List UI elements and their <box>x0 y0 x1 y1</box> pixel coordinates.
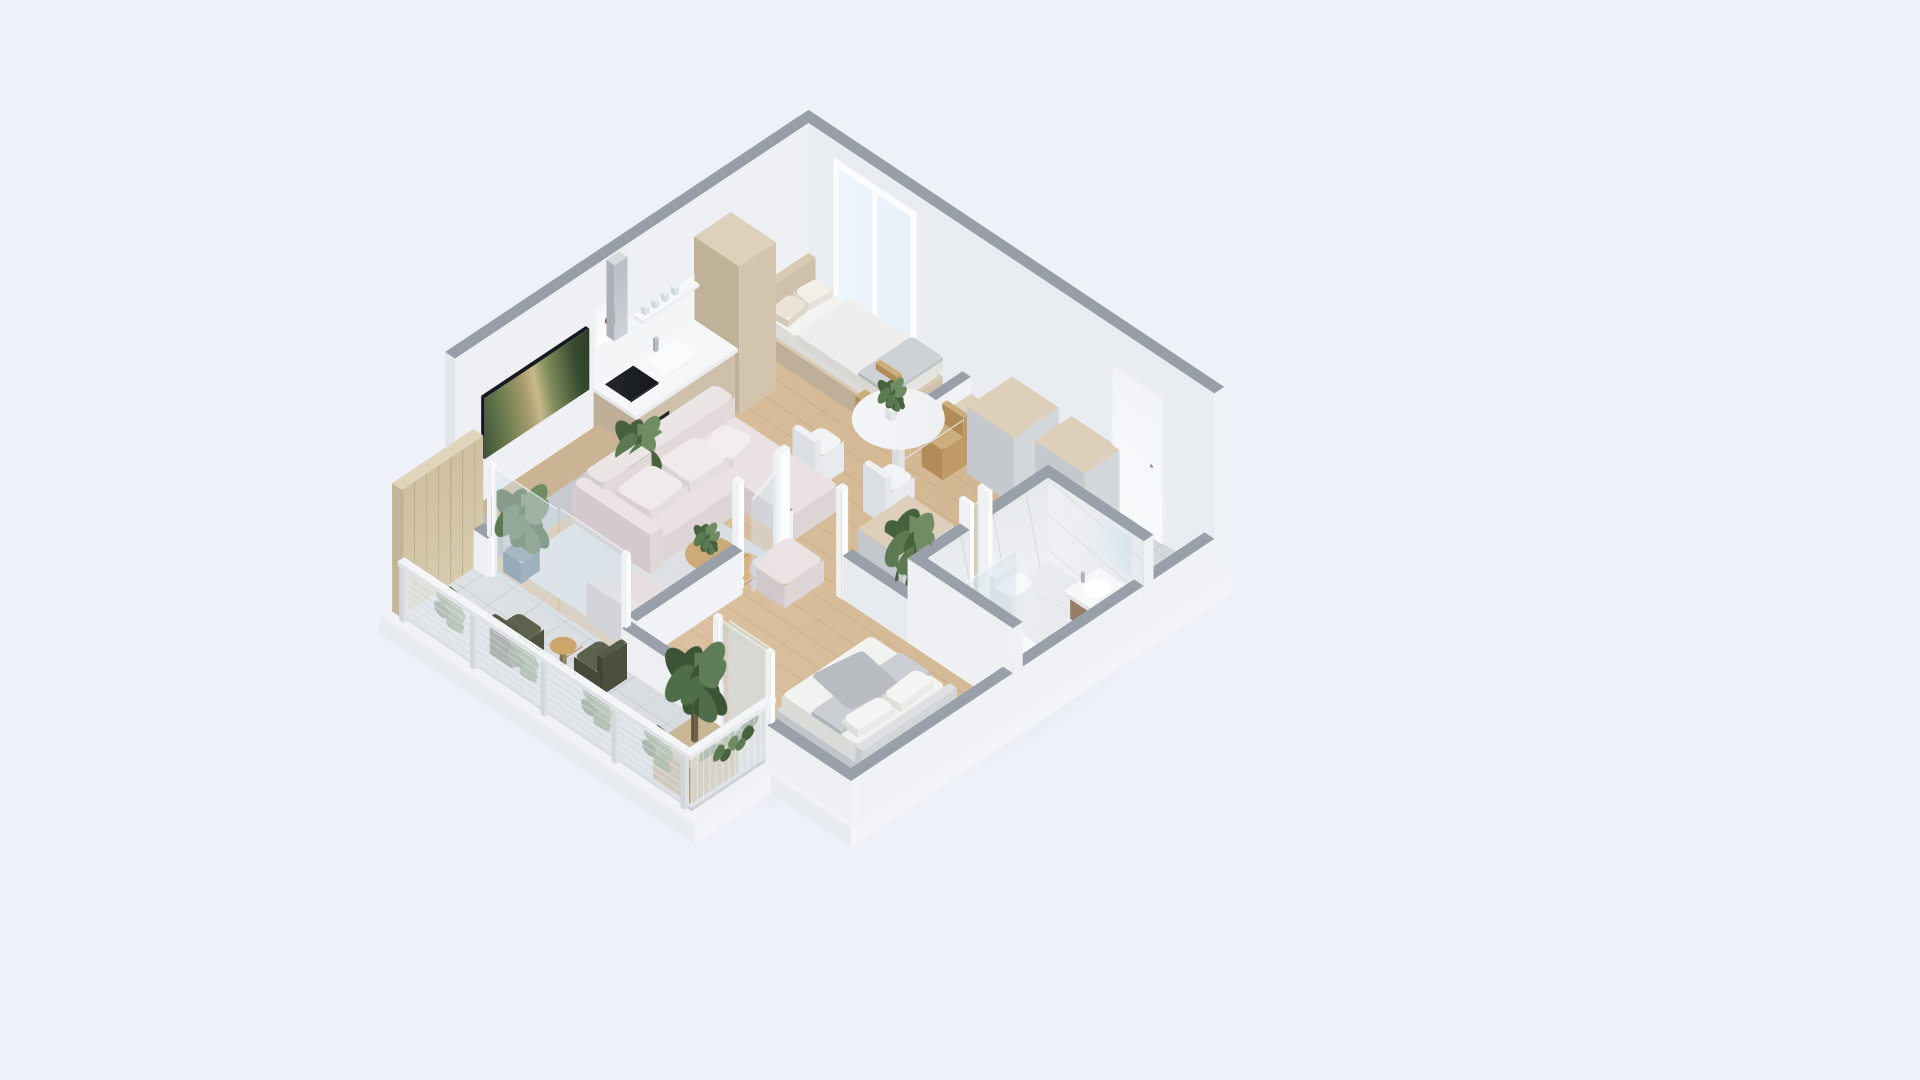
living-glassdoor-pane-1-front-face <box>556 509 557 620</box>
wall-southwest-low-c-front-face <box>851 775 861 823</box>
range-hood-left-face <box>606 260 614 342</box>
vanity-faucet-front-face <box>1083 572 1085 583</box>
wall-northeast-front-face <box>1214 387 1224 580</box>
floorplan-render-stage <box>0 0 1920 1080</box>
balcony-rail-post-5-front-face <box>685 752 689 810</box>
range-hood-front-face <box>615 257 628 342</box>
pantry-column-front-face <box>739 242 776 416</box>
